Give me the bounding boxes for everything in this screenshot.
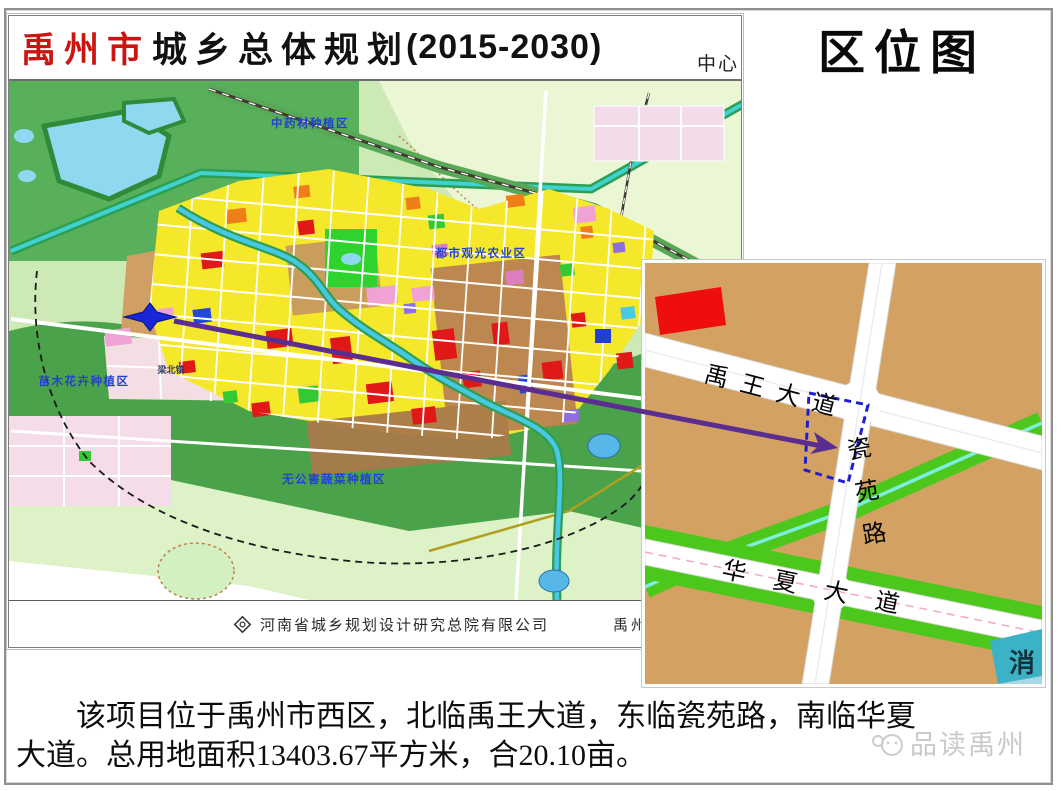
label-nursery-zone: 苗木花卉种植区 [39,374,130,388]
corner-note: 中心 [693,49,739,76]
inset-map-canvas: 消 禹王大道 瓷苑路 华夏大道 [645,263,1042,684]
plan-title: 禹州市 城乡总体规划 (2015-2030) [9,16,741,81]
footer-company: 河南省城乡规划设计研究总院有限公司 [260,614,549,635]
watermark-text: 品读禹州 [910,723,1026,762]
plan-title-main: 城乡总体规划 [152,22,410,73]
label-agritourism-zone: 都市观光农业区 [435,246,527,260]
label-vegetable-zone: 无公害蔬菜种植区 [281,472,386,486]
location-inset-map: 消 禹王大道 瓷苑路 华夏大道 [642,260,1045,687]
fire-station-label: 消 [1009,648,1035,678]
plan-footer: 河南省城乡规划设计研究总院有限公司 禹州市人 [9,600,741,648]
plan-title-years: (2015-2030) [406,28,602,67]
location-map-heading: 区位图 [818,14,986,83]
label-liangbei-town: 梁北镇 [156,364,184,375]
plan-title-city: 禹州市 [21,22,150,73]
master-plan-map-sheet: 禹州市 城乡总体规划 (2015-2030) 中心 [8,15,742,648]
watermark: 品读禹州 [870,723,1026,762]
master-plan-map: 中药材种植区 都市观光农业区 苗木花卉种植区 无公害蔬菜种植区 梁北镇 [9,81,742,600]
watermark-logo-icon [870,728,906,758]
slide: 禹州市 城乡总体规划 (2015-2030) 中心 [0,0,1063,791]
institute-logo-icon [233,615,252,634]
label-herb-zone: 中药材种植区 [271,116,349,130]
